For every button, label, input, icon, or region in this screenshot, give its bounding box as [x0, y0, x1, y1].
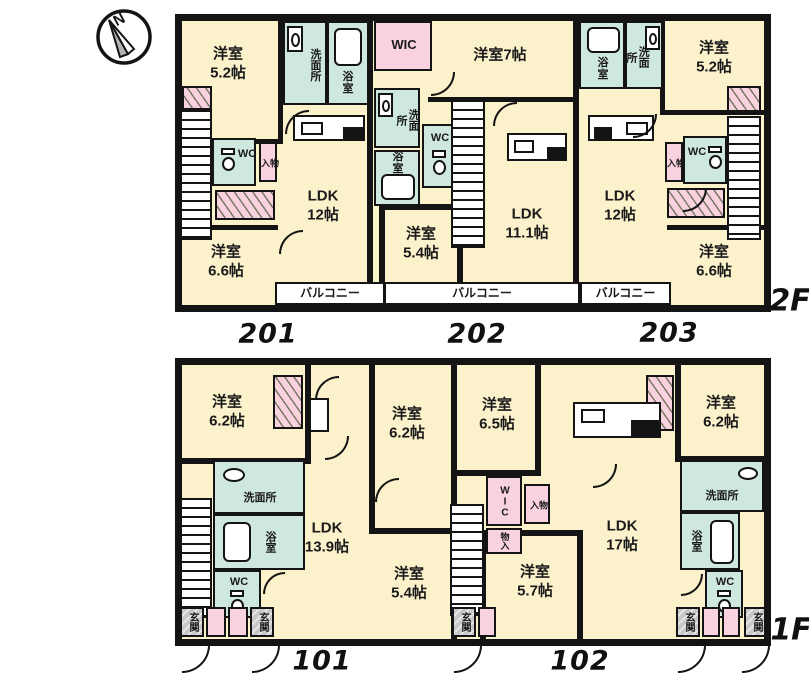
door-arc — [263, 572, 285, 594]
room-label: LDK 13.9帖 — [305, 519, 349, 557]
window-marker — [465, 14, 535, 21]
window-marker — [764, 244, 771, 284]
kitchen-sink — [514, 140, 534, 153]
washroom-203: 洗面所 — [625, 21, 663, 89]
room-label: 洋室 5.4帖 — [391, 565, 427, 603]
room-label: 物入 — [498, 533, 513, 551]
room-label: 洗面所 — [395, 107, 419, 133]
room-label: 洋室7帖 — [473, 47, 526, 66]
window-marker — [390, 358, 440, 365]
room-label: 浴室 — [264, 531, 276, 553]
entrance-201: 玄関 — [250, 607, 274, 637]
entrance-label: 玄関 — [257, 612, 267, 632]
toilet-icon — [707, 146, 725, 172]
closet-201 — [182, 86, 212, 110]
unit-number-203: 203 — [639, 318, 698, 349]
balcony-203: バルコニー — [580, 282, 671, 305]
room-label: 洋室 5.2帖 — [210, 45, 246, 83]
shoe-cabinet — [478, 607, 496, 637]
entrance-label: 玄関 — [459, 612, 469, 632]
entrance-102: 玄関 — [676, 607, 700, 637]
window-marker — [175, 413, 182, 449]
unit-number-101: 101 — [292, 646, 351, 676]
entrance-door-arc — [742, 645, 770, 673]
entrance-label: 玄関 — [683, 612, 693, 632]
room-label: WC — [688, 146, 706, 158]
wall — [369, 358, 375, 534]
stairs-203 — [727, 116, 761, 240]
room-label: LDK 17帖 — [606, 517, 638, 555]
room-label: 洋室 6.2帖 — [703, 394, 739, 432]
door-arc — [493, 102, 517, 126]
room-label: WIC — [391, 37, 416, 53]
shoe-cabinet — [206, 607, 226, 637]
entrance-label: 玄関 — [187, 612, 197, 632]
room-label: 洗面所 — [706, 490, 739, 502]
sink-icon — [223, 468, 245, 482]
wc-201: WC — [212, 138, 256, 186]
room-label: 洗面所 — [244, 492, 277, 504]
room-label: WC — [431, 132, 449, 144]
stairs-middle — [450, 504, 484, 616]
room-label: 洋室 5.7帖 — [517, 563, 553, 601]
window-marker — [720, 358, 765, 365]
room-label: 浴室 — [593, 57, 613, 81]
balcony-201: バルコニー — [275, 282, 385, 305]
shoe-cabinet — [722, 607, 740, 637]
window-marker — [764, 573, 771, 613]
entrance-door-arc — [454, 645, 482, 673]
door-arc — [279, 230, 303, 254]
entrance-door-arc — [182, 645, 210, 673]
room-label: 洋室 6.6帖 — [208, 243, 244, 281]
room-label: WC — [716, 576, 734, 588]
washer-icon — [378, 93, 393, 117]
wic-102: WIC — [486, 476, 522, 526]
room-label: 物入 — [529, 497, 547, 514]
room-label: WC — [230, 576, 248, 588]
toilet-icon — [220, 148, 238, 174]
room-label: 洋室 5.4帖 — [403, 225, 439, 263]
floor-1f: 洗面所 浴室 WC WIC 物入 物入 — [175, 358, 771, 646]
unit-number-202: 202 — [447, 319, 506, 350]
floor-label-1f: 1F — [770, 613, 809, 648]
shoe-cabinet — [228, 607, 248, 637]
kitchen-counter-202 — [507, 133, 567, 161]
wic-202: WIC — [374, 21, 432, 71]
bathtub-icon — [381, 174, 415, 200]
bathtub-icon — [223, 522, 251, 562]
entrance-202: 玄関 — [452, 607, 476, 637]
balcony-label: バルコニー — [300, 286, 360, 301]
room-label: 洗面所 — [309, 49, 321, 82]
door-arc — [681, 574, 703, 596]
bathroom-203: 浴室 — [579, 21, 625, 89]
entrance-door-arc — [252, 645, 280, 673]
wc-203: WC — [683, 136, 727, 184]
window-marker — [600, 358, 640, 365]
room-label: 浴室 — [388, 151, 408, 175]
window-marker — [175, 244, 182, 284]
bathtub-icon — [587, 27, 620, 53]
window-marker — [764, 49, 771, 89]
bathtub-icon — [334, 28, 362, 66]
window-marker — [200, 305, 255, 312]
room-label: 物入 — [260, 155, 278, 172]
kitchen-counter-102 — [573, 402, 661, 438]
door-arc — [315, 376, 339, 400]
entrance-label: 玄関 — [751, 612, 761, 632]
washer-icon — [287, 26, 303, 52]
room-label: 洋室 5.2帖 — [696, 39, 732, 77]
closet-201b — [215, 190, 275, 220]
kitchen-sink — [581, 409, 605, 423]
room-label: 洋室 6.5帖 — [479, 396, 515, 434]
entrance-door-arc — [678, 645, 706, 673]
wall — [535, 358, 541, 472]
window-marker — [495, 358, 535, 365]
window-marker — [680, 14, 740, 21]
bathroom-102: 浴室 — [680, 512, 740, 570]
window-marker — [210, 14, 265, 21]
room-label: 洋室 6.2帖 — [389, 405, 425, 443]
window-marker — [764, 388, 771, 428]
door-arc — [285, 110, 309, 134]
wall — [577, 530, 583, 639]
room-label: LDK 12帖 — [604, 187, 636, 225]
room-label: 洋室 6.2帖 — [209, 393, 245, 431]
stairs-201 — [178, 110, 212, 240]
window-marker — [205, 358, 265, 365]
bathroom-201: 浴室 — [327, 21, 369, 105]
room-label: 物入 — [666, 155, 684, 172]
storage-102a: 物入 — [524, 484, 550, 524]
door-arc — [593, 464, 617, 488]
wall — [428, 97, 573, 102]
room-label: 洗面所 — [625, 42, 649, 72]
storage-201: 物入 — [259, 142, 277, 182]
sink-icon — [738, 467, 758, 480]
wall — [369, 528, 459, 534]
wall — [675, 358, 681, 460]
window-marker — [700, 305, 755, 312]
window-marker — [175, 49, 182, 89]
storage-102b: 物入 — [486, 528, 522, 554]
shoe-cabinet — [702, 607, 720, 637]
washroom-101: 洗面所 — [213, 460, 305, 514]
room-label: WIC — [500, 486, 511, 519]
bathroom-101: 浴室 — [213, 514, 305, 570]
room-label: 浴室 — [690, 530, 702, 552]
stairs-101 — [178, 498, 212, 618]
wall — [379, 204, 385, 290]
unit-number-102: 102 — [550, 646, 609, 676]
room-label: LDK 12帖 — [307, 187, 339, 225]
entrance-101: 玄関 — [180, 607, 204, 637]
balcony-202: バルコニー — [384, 282, 580, 305]
door-arc — [375, 478, 399, 502]
floor-label-2f: 2F — [769, 284, 809, 319]
wall-fixture — [309, 398, 329, 432]
washroom-201: 洗面所 — [283, 21, 327, 105]
unit-number-201: 201 — [238, 319, 297, 350]
balcony-label: バルコニー — [596, 286, 656, 301]
bathtub-icon — [710, 520, 734, 564]
storage-203: 物入 — [665, 142, 683, 182]
floor-plan-page: N 洗面所 浴室 WC — [0, 0, 809, 676]
washroom-202: 洗面所 — [374, 88, 420, 148]
door-arc — [325, 436, 349, 460]
balcony-label: バルコニー — [452, 286, 512, 301]
room-label: 洋室 6.6帖 — [696, 243, 732, 281]
room-label: LDK 11.1帖 — [505, 205, 548, 243]
door-arc — [431, 72, 455, 96]
toilet-icon — [431, 150, 449, 180]
closet-101 — [273, 375, 303, 429]
compass-icon: N — [92, 5, 154, 67]
floor-2f: 洗面所 浴室 WC 物入 WIC 洗面所 — [175, 14, 771, 312]
room-label: 浴室 — [339, 71, 358, 95]
stairs-202 — [451, 100, 485, 248]
room-label: WC — [238, 148, 256, 160]
washroom-102: 洗面所 — [680, 460, 764, 512]
bathroom-202: 浴室 — [374, 150, 420, 206]
closet-203 — [727, 86, 761, 112]
